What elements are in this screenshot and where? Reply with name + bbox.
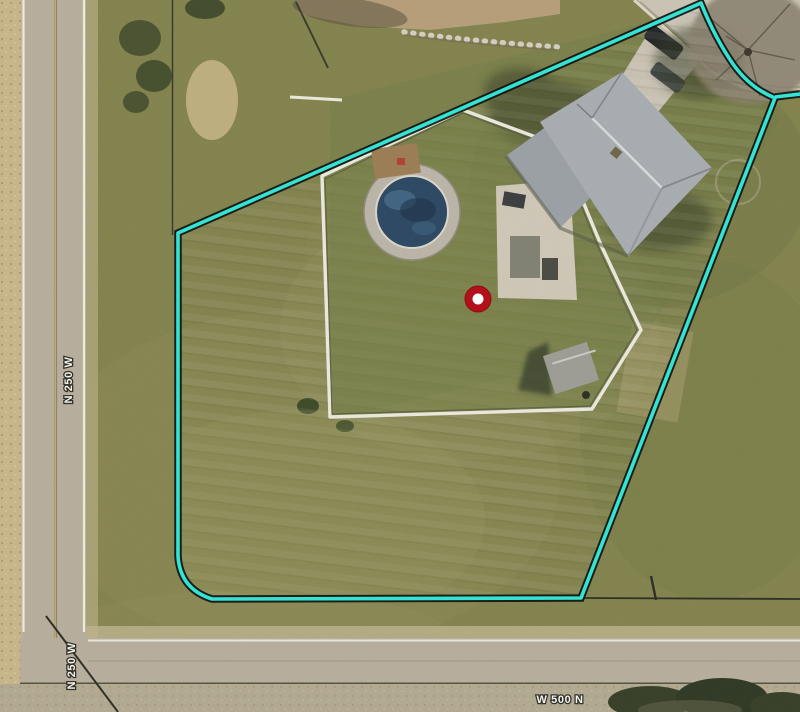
marker-inner-dot [473, 294, 484, 305]
road-label-w500n: W 500 N [537, 694, 584, 706]
map-canvas[interactable]: N 250 W N 250 W W 500 N [0, 0, 800, 712]
map-viewport[interactable]: N 250 W N 250 W W 500 N [0, 0, 800, 712]
road-label-n250w-upper: N 250 W [63, 356, 75, 403]
road-label-n250w-lower: N 250 W [66, 642, 78, 689]
photo-grain [0, 0, 800, 712]
point-marker[interactable] [465, 286, 491, 312]
